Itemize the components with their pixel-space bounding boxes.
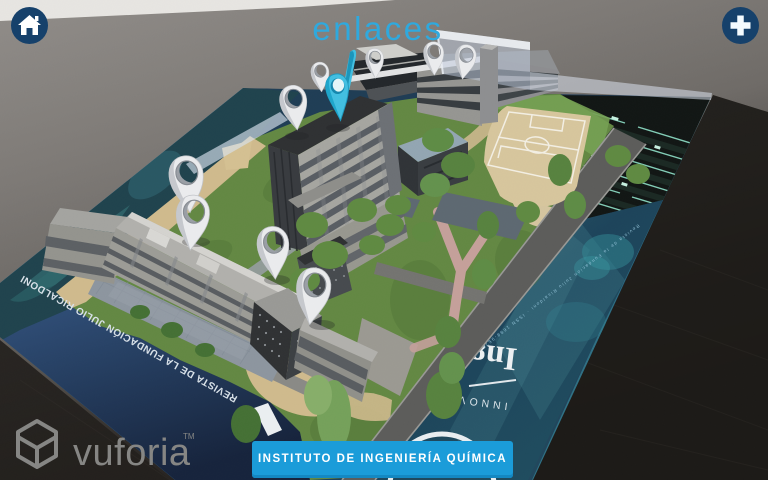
svg-text:TM: TM xyxy=(183,432,195,441)
svg-text:vuforia: vuforia xyxy=(73,432,191,474)
